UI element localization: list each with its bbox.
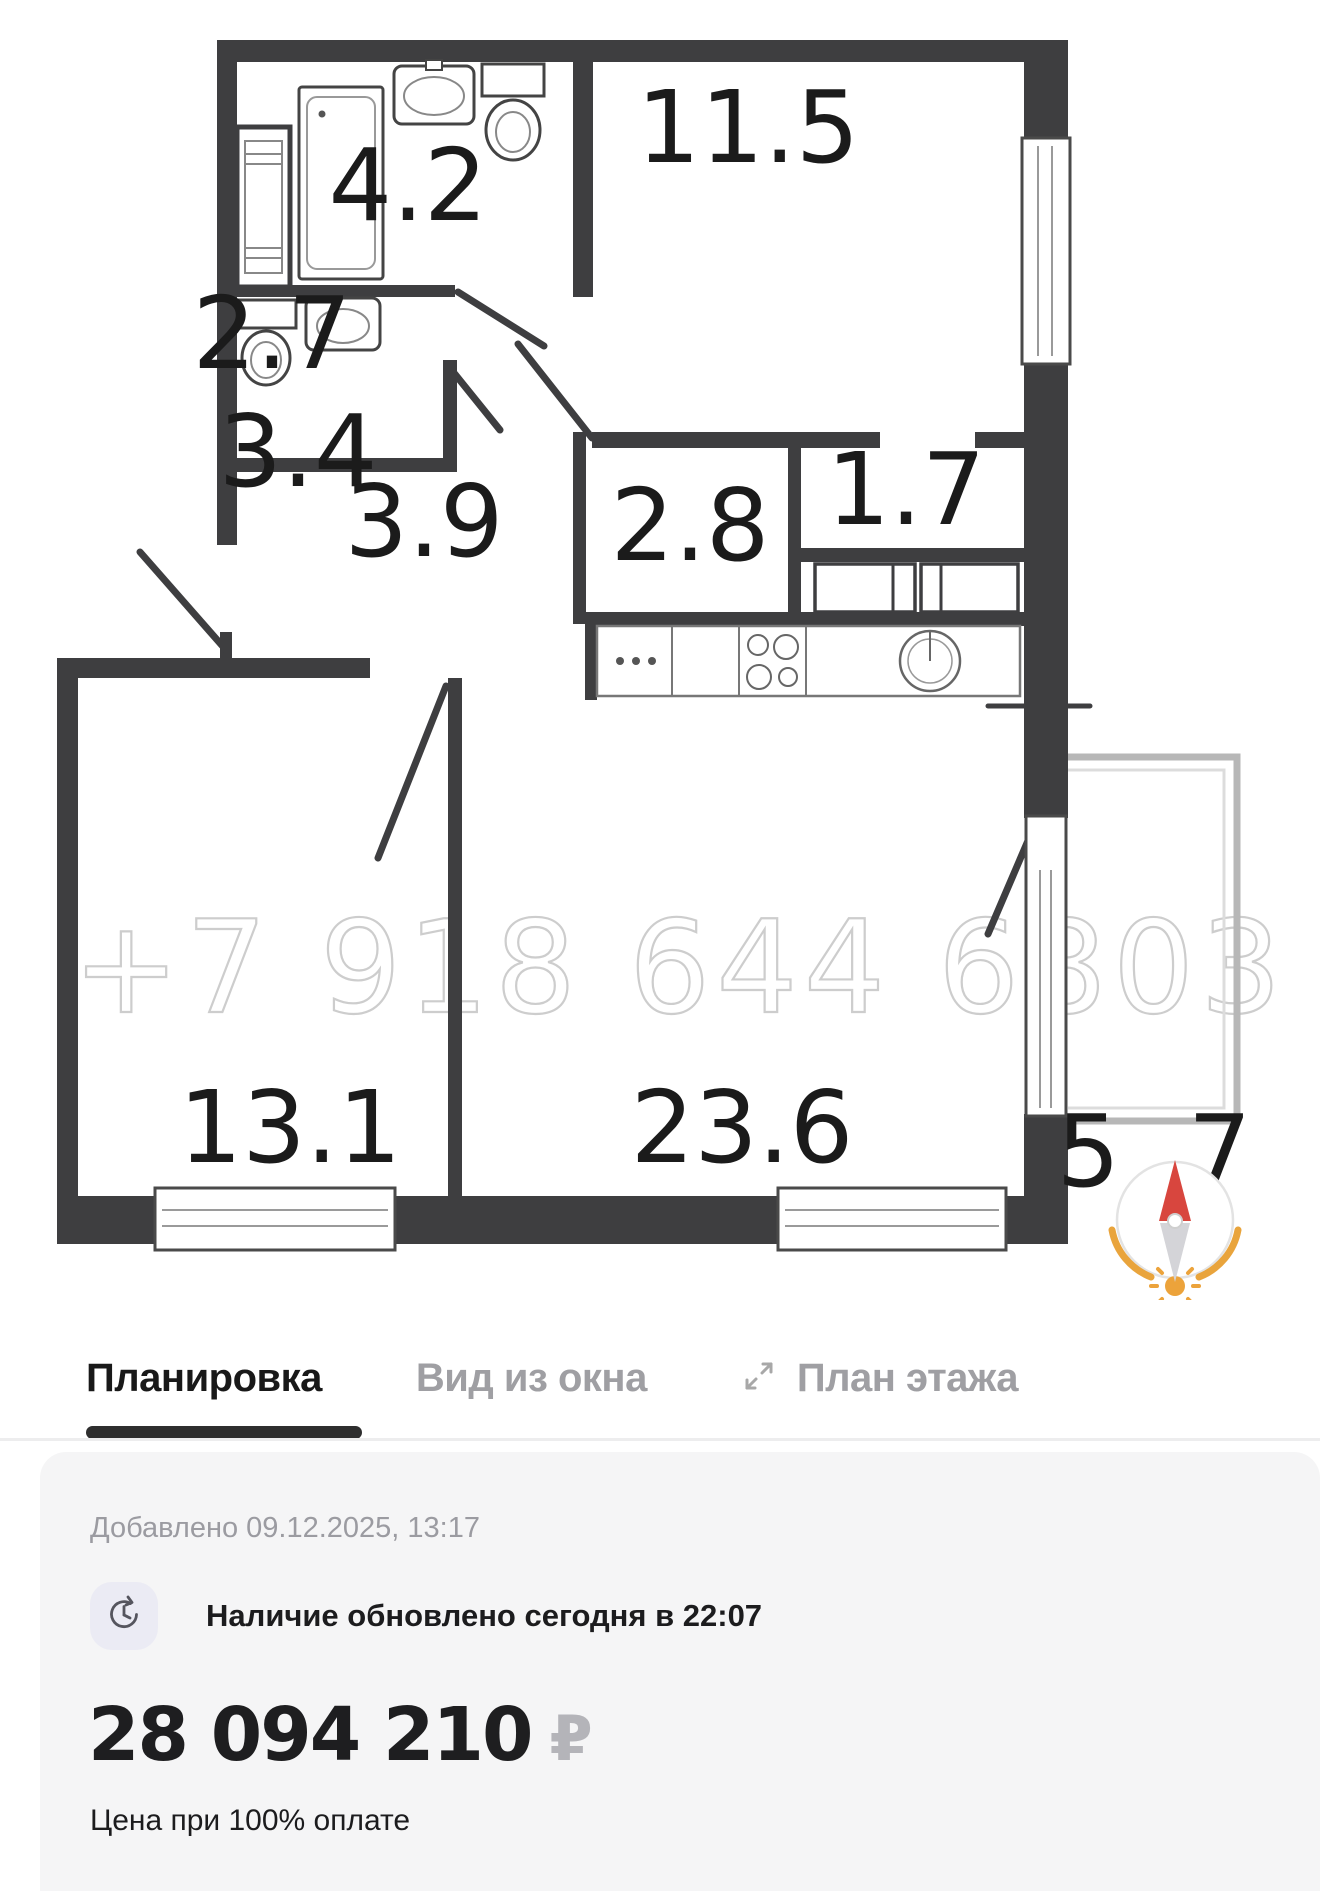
tabs-divider: [0, 1438, 1320, 1441]
room-label-bathroom: 4.2: [328, 127, 487, 244]
kitchen-counter: [597, 626, 1020, 696]
watermark-phone: +7 918 644 6803: [72, 894, 1287, 1043]
ruble-sign: ₽: [549, 1702, 592, 1775]
tab-floor-plan-label: План этажа: [797, 1356, 1018, 1401]
price-note: Цена при 100% оплате: [90, 1804, 410, 1838]
availability-row: Наличие обновлено сегодня в 22:07: [90, 1582, 762, 1650]
room-label-wc: 2.7: [192, 275, 351, 392]
wardrobe-boxes: [815, 564, 1018, 612]
clock-refresh-icon: [103, 1593, 145, 1640]
room-label-bedroom: 11.5: [637, 69, 860, 186]
added-date: Добавлено 09.12.2025, 13:17: [90, 1512, 480, 1545]
tab-layout[interactable]: Планировка: [86, 1356, 322, 1401]
floor-plan-image[interactable]: +7 918 644 6803: [0, 0, 1320, 1300]
expand-icon: [741, 1358, 777, 1399]
tab-bar: Планировка Вид из окна План этажа: [86, 1356, 1018, 1401]
listing-screen: +7 918 644 6803: [0, 0, 1320, 1891]
room-label-room-second: 13.1: [179, 1069, 402, 1186]
availability-chip: [90, 1582, 158, 1650]
room-label-closet: 2.8: [610, 467, 769, 584]
tab-floor-plan[interactable]: План этажа: [741, 1356, 1018, 1401]
price-row: 28 094 210 ₽: [88, 1692, 593, 1778]
compass-icon: [1112, 1160, 1238, 1300]
room-label-hallway: 3.9: [344, 463, 503, 580]
room-label-wardrobe: 1.7: [826, 431, 985, 548]
price-value: 28 094 210: [88, 1692, 531, 1778]
room-label-living-kitchen: 23.6: [631, 1069, 854, 1186]
tab-window-view[interactable]: Вид из окна: [416, 1356, 647, 1401]
availability-text: Наличие обновлено сегодня в 22:07: [206, 1598, 762, 1634]
listing-info-card: Добавлено 09.12.2025, 13:17 Наличие обно…: [40, 1452, 1320, 1891]
